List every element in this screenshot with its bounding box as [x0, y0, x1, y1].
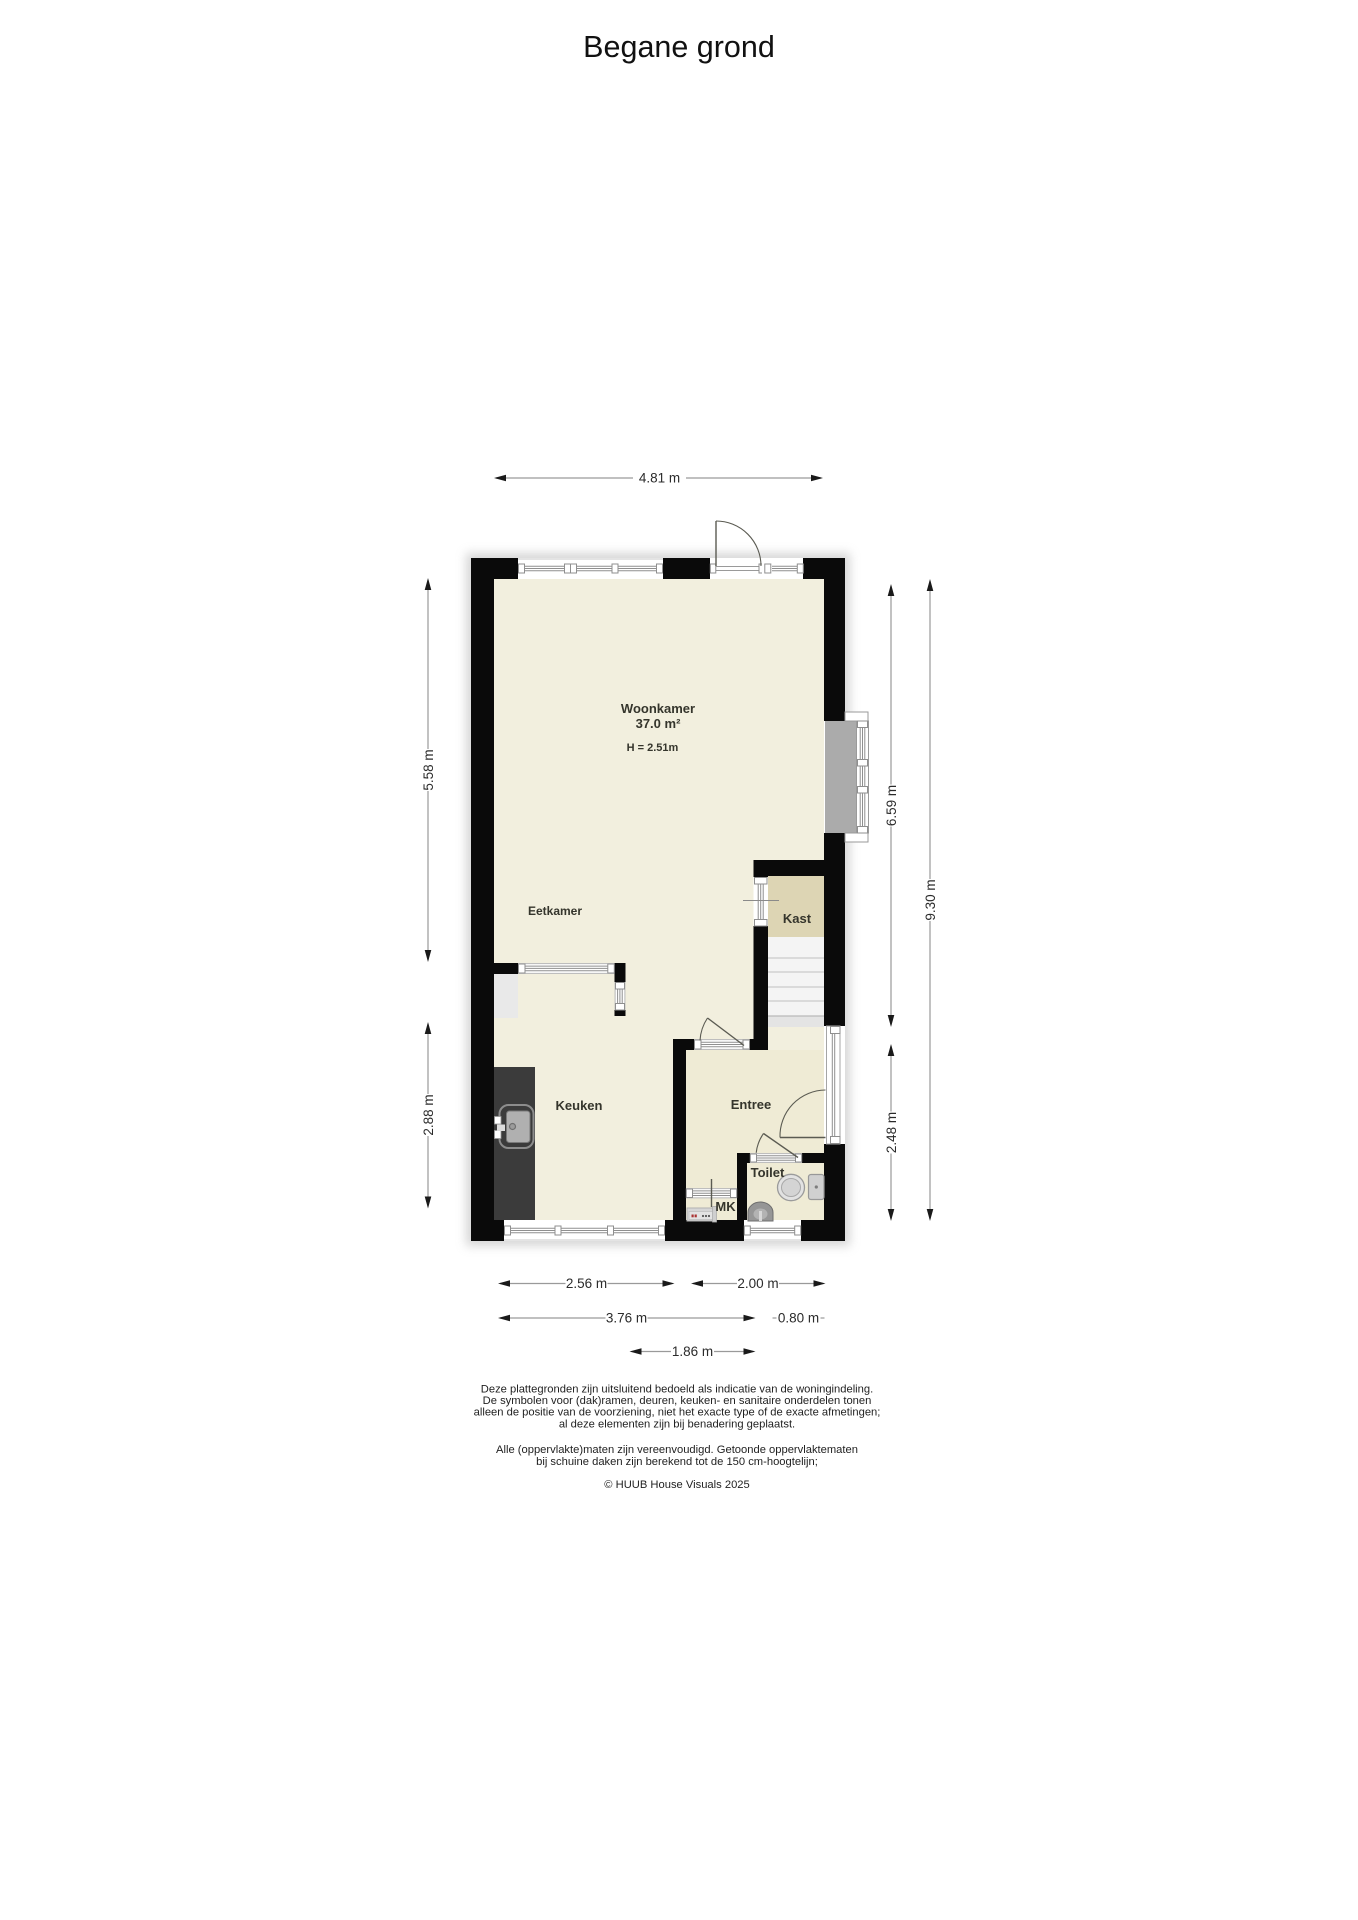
svg-text:bij schuine daken zijn bereken: bij schuine daken zijn berekend tot de 1… — [536, 1456, 818, 1468]
svg-text:5.58 m: 5.58 m — [421, 749, 436, 790]
svg-text:Keuken: Keuken — [556, 1098, 603, 1113]
svg-text:2.00 m: 2.00 m — [737, 1276, 778, 1291]
svg-text:De symbolen voor (dak)ramen, d: De symbolen voor (dak)ramen, deuren, keu… — [483, 1395, 872, 1407]
svg-text:4.81 m: 4.81 m — [639, 471, 680, 486]
svg-text:al deze elementen zijn bij ben: al deze elementen zijn bij benadering ge… — [559, 1418, 795, 1430]
svg-text:Eetkamer: Eetkamer — [528, 904, 582, 918]
svg-text:2.56 m: 2.56 m — [566, 1276, 607, 1291]
svg-text:3.76 m: 3.76 m — [606, 1311, 647, 1326]
svg-text:Deze plattegronden zijn uitslu: Deze plattegronden zijn uitsluitend bedo… — [481, 1383, 873, 1395]
svg-text:MK: MK — [715, 1199, 736, 1214]
svg-text:0.80 m: 0.80 m — [778, 1311, 819, 1326]
svg-text:2.48 m: 2.48 m — [884, 1112, 899, 1153]
svg-text:1.86 m: 1.86 m — [672, 1344, 713, 1359]
svg-text:alleen de positie van de voorz: alleen de positie van de voorziening, ni… — [474, 1407, 881, 1419]
svg-text:37.0 m²: 37.0 m² — [636, 716, 681, 731]
svg-text:Entree: Entree — [731, 1097, 771, 1112]
svg-text:Kast: Kast — [783, 911, 812, 926]
svg-text:9.30 m: 9.30 m — [923, 879, 938, 920]
svg-text:2.88 m: 2.88 m — [421, 1094, 436, 1135]
svg-text:Toilet: Toilet — [751, 1165, 785, 1180]
svg-text:H = 2.51m: H = 2.51m — [627, 742, 679, 754]
svg-text:Begane grond: Begane grond — [583, 30, 775, 64]
svg-text:© HUUB House Visuals 2025: © HUUB House Visuals 2025 — [604, 1479, 749, 1491]
svg-text:Alle (oppervlakte)maten zijn v: Alle (oppervlakte)maten zijn vereenvoudi… — [496, 1444, 858, 1456]
svg-text:6.59 m: 6.59 m — [884, 785, 899, 826]
svg-text:Woonkamer: Woonkamer — [621, 701, 695, 716]
